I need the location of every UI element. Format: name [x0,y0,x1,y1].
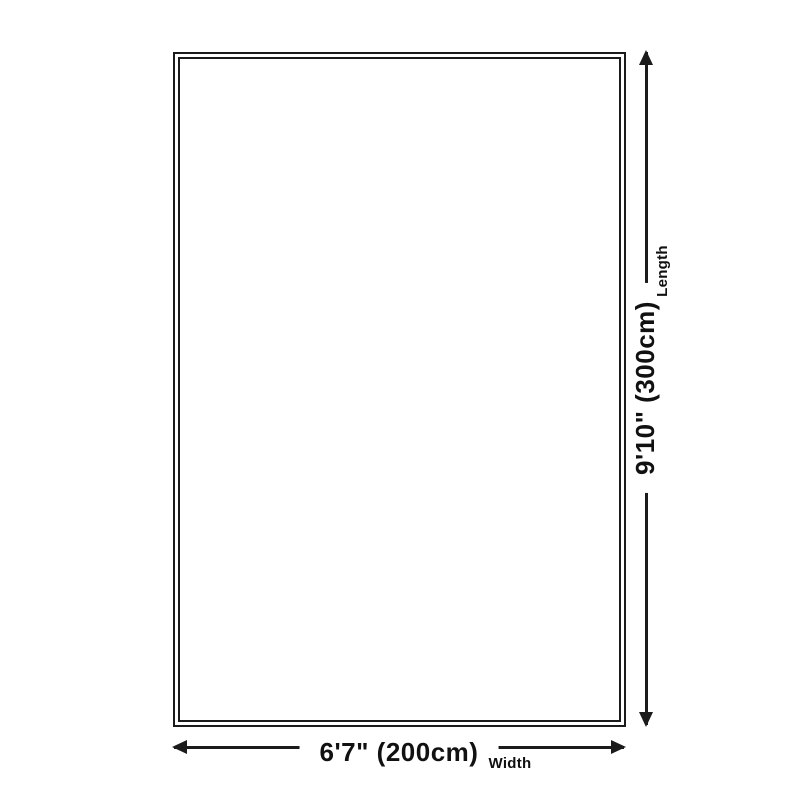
arrow-left-icon [172,740,187,754]
rug-dimension-diagram: 9'10" (300cm) Length 6'7" (200cm) Width [0,0,800,800]
arrow-up-icon [639,50,653,65]
length-label: Length [654,245,672,297]
arrow-down-icon [639,712,653,727]
arrow-right-icon [611,740,626,754]
width-value: 6'7" (200cm) [300,737,499,767]
rug-outline [173,52,626,727]
rug-outline-inner [178,57,621,722]
length-value: 9'10" (300cm) [630,283,660,493]
width-label: Width [488,755,531,773]
